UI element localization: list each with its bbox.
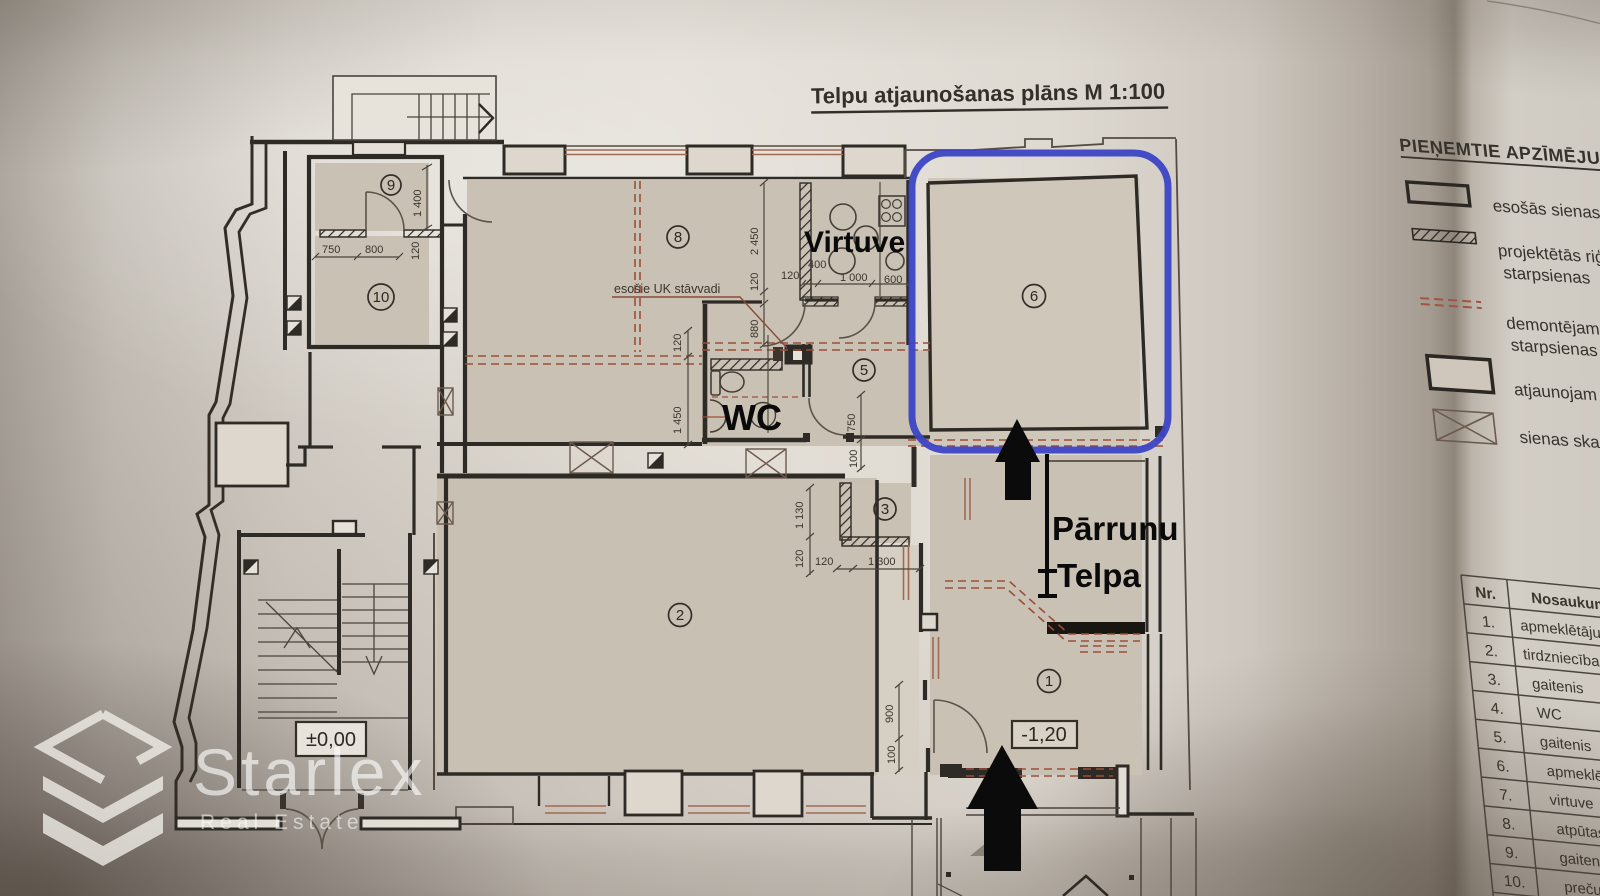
svg-text:virtuve: virtuve [1549,792,1595,813]
svg-text:1 130: 1 130 [794,501,806,529]
svg-text:apmeklē: apmeklē [1546,763,1600,785]
svg-text:120: 120 [815,556,833,568]
svg-text:starpsienas: starpsienas [1502,263,1591,288]
svg-text:6.: 6. [1496,758,1511,776]
svg-text:1.: 1. [1481,613,1496,631]
svg-text:esošās sienas: esošās sienas [1492,196,1600,222]
svg-text:800: 800 [365,244,383,256]
svg-text:120: 120 [794,550,806,568]
svg-text:600: 600 [884,274,902,286]
svg-text:400: 400 [808,259,826,271]
svg-text:1: 1 [1045,673,1053,690]
svg-text:750: 750 [846,414,858,432]
svg-text:120: 120 [410,242,422,260]
svg-text:4.: 4. [1490,700,1505,718]
svg-text:2.: 2. [1484,642,1499,660]
svg-text:sienas ska: sienas ska [1518,428,1600,452]
svg-text:9.: 9. [1504,844,1519,862]
svg-text:120: 120 [781,270,799,282]
svg-text:Telpu atjaunošanas plāns M 1:1: Telpu atjaunošanas plāns M 1:100 [811,79,1165,109]
svg-text:120: 120 [672,334,684,352]
svg-text:3: 3 [881,501,889,518]
svg-text:gaiteni: gaiteni [1559,850,1600,871]
svg-text:WC: WC [722,397,782,438]
svg-text:gaitenis: gaitenis [1539,733,1592,755]
svg-text:apmeklētāju: apmeklētāju [1519,617,1600,642]
svg-text:2: 2 [676,607,684,624]
svg-text:6: 6 [1030,288,1038,305]
svg-text:10.: 10. [1503,873,1526,892]
svg-text:5.: 5. [1493,729,1508,747]
svg-text:1 450: 1 450 [672,406,684,434]
svg-text:Virtuve: Virtuve [804,226,905,259]
svg-text:atjaunojam: atjaunojam [1513,380,1598,404]
svg-text:100: 100 [886,746,898,764]
svg-text:Nosaukum: Nosaukum [1530,590,1600,614]
svg-text:1 300: 1 300 [868,556,896,568]
svg-text:atpūtas: atpūtas [1556,821,1600,843]
svg-text:-1,20: -1,20 [1021,724,1067,746]
svg-text:750: 750 [322,244,340,256]
svg-text:10: 10 [373,289,390,306]
svg-text:120: 120 [749,273,761,291]
svg-text:demontējam: demontējam [1505,314,1600,339]
svg-text:8.: 8. [1501,815,1516,833]
svg-text:9: 9 [387,177,395,194]
svg-text:Pārrunu: Pārrunu [1052,510,1179,547]
svg-text:starpsienas: starpsienas [1510,336,1599,361]
svg-text:WC: WC [1536,705,1563,724]
svg-text:5: 5 [860,362,868,379]
svg-text:Starlex: Starlex [193,735,426,809]
svg-text:7.: 7. [1499,787,1514,805]
svg-text:3.: 3. [1487,671,1502,689]
svg-text:tirdzniecība: tirdzniecība [1522,646,1600,670]
svg-text:1 400: 1 400 [412,189,424,217]
svg-text:gaitenis: gaitenis [1531,676,1584,698]
svg-text:880: 880 [749,320,761,338]
svg-text:Telpa: Telpa [1057,557,1141,594]
svg-text:8: 8 [674,229,682,246]
svg-text:esošie UK stāvvadi: esošie UK stāvvadi [614,282,720,296]
svg-text:900: 900 [884,705,896,723]
svg-text:Real Estate: Real Estate [200,811,364,834]
svg-text:2 450: 2 450 [749,227,761,255]
svg-text:Nr.: Nr. [1474,584,1496,603]
svg-text:preču: preču [1563,879,1600,896]
svg-text:PIEŅEMTIE APZĪMĒJUMI: PIEŅEMTIE APZĪMĒJUMI [1398,135,1600,170]
svg-text:100: 100 [848,450,860,468]
